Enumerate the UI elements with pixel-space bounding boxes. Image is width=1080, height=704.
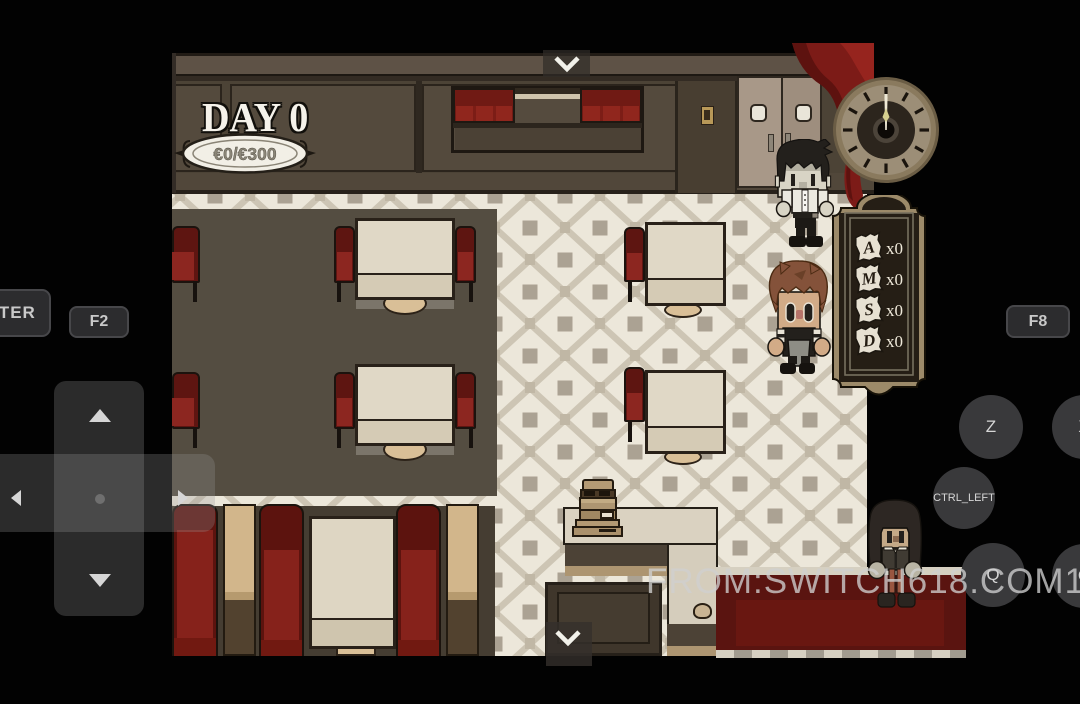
svg-text:€0/€300: €0/€300 [213,144,277,164]
svg-text:x0: x0 [886,301,903,320]
svg-text:M: M [859,268,878,289]
svg-text:A: A [861,237,876,257]
svg-text:x0: x0 [886,270,903,289]
svg-text:D: D [861,330,876,350]
svg-text:x0: x0 [886,332,903,351]
svg-text:x0: x0 [886,239,903,258]
